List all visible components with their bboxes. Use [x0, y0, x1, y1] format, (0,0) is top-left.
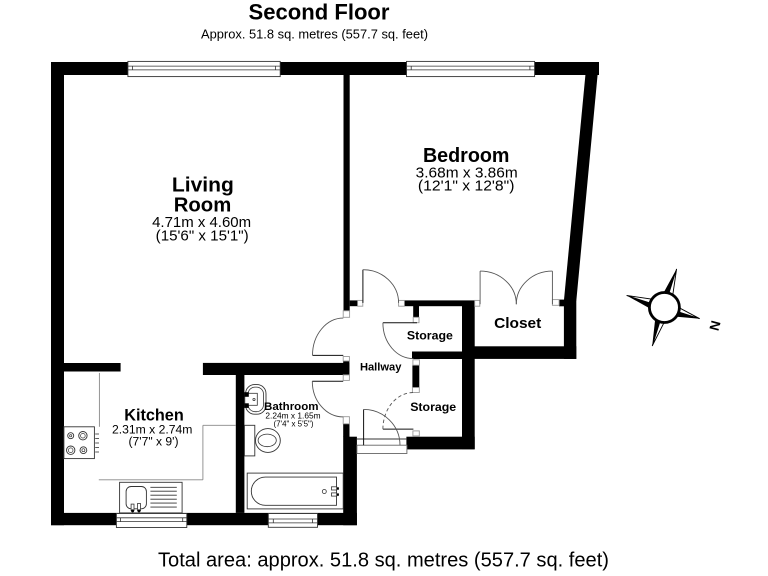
svg-text:Closet: Closet — [494, 315, 541, 332]
svg-text:(12'1" x 12'8"): (12'1" x 12'8") — [418, 178, 515, 195]
svg-text:Storage: Storage — [407, 329, 453, 343]
svg-text:Hallway: Hallway — [360, 362, 402, 374]
svg-text:(7'4" x 5'5"): (7'4" x 5'5") — [274, 419, 314, 429]
svg-text:Total area: approx. 51.8 sq. m: Total area: approx. 51.8 sq. metres (557… — [158, 550, 609, 572]
svg-text:Storage: Storage — [410, 400, 456, 414]
svg-text:(7'7" x 9'): (7'7" x 9') — [129, 434, 179, 448]
svg-text:Approx. 51.8 sq. metres (557.7: Approx. 51.8 sq. metres (557.7 sq. feet) — [201, 26, 428, 41]
svg-text:Living: Living — [172, 174, 234, 196]
svg-text:Second Floor: Second Floor — [249, 0, 390, 25]
svg-text:Room: Room — [174, 194, 232, 216]
svg-text:(15'6" x 15'1"): (15'6" x 15'1") — [156, 228, 249, 244]
